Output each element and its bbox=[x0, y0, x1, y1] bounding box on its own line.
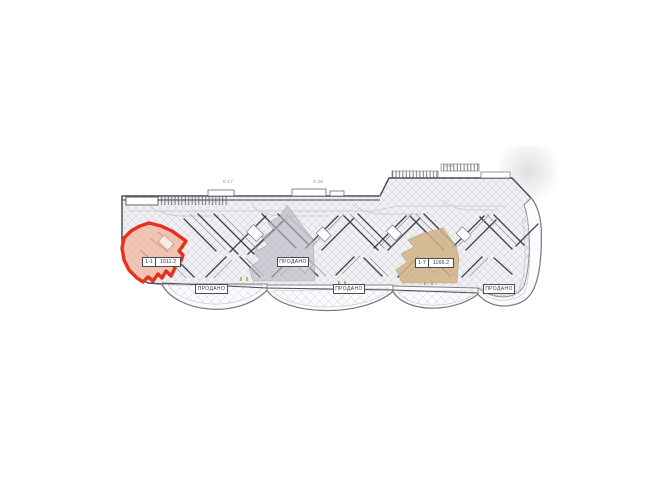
dimension-label: 8.38 bbox=[443, 164, 453, 169]
sold-badge[interactable]: ПРОДАНО bbox=[195, 284, 228, 294]
unit-number: 1-1 bbox=[143, 258, 156, 266]
sold-badge[interactable]: ПРОДАНО bbox=[277, 257, 309, 267]
floor-plan-page: 8.17 8.38 8.38 1-1 1011.2 1-7 1165.2 ПРО… bbox=[0, 0, 653, 489]
sold-badge[interactable]: ПРОДАНО bbox=[483, 284, 515, 294]
floor-plan bbox=[0, 0, 653, 489]
unit-label-1-7[interactable]: 1-7 1165.2 bbox=[415, 258, 454, 268]
unit-label-1-1[interactable]: 1-1 1011.2 bbox=[142, 257, 181, 267]
sold-badge[interactable]: ПРОДАНО bbox=[333, 284, 365, 294]
dimension-label: 8.17 bbox=[223, 180, 233, 185]
dimension-label: 8.38 bbox=[313, 180, 323, 185]
unit-area: 1011.2 bbox=[156, 258, 180, 266]
unit-area: 1165.2 bbox=[429, 259, 453, 267]
unit-number: 1-7 bbox=[416, 259, 429, 267]
